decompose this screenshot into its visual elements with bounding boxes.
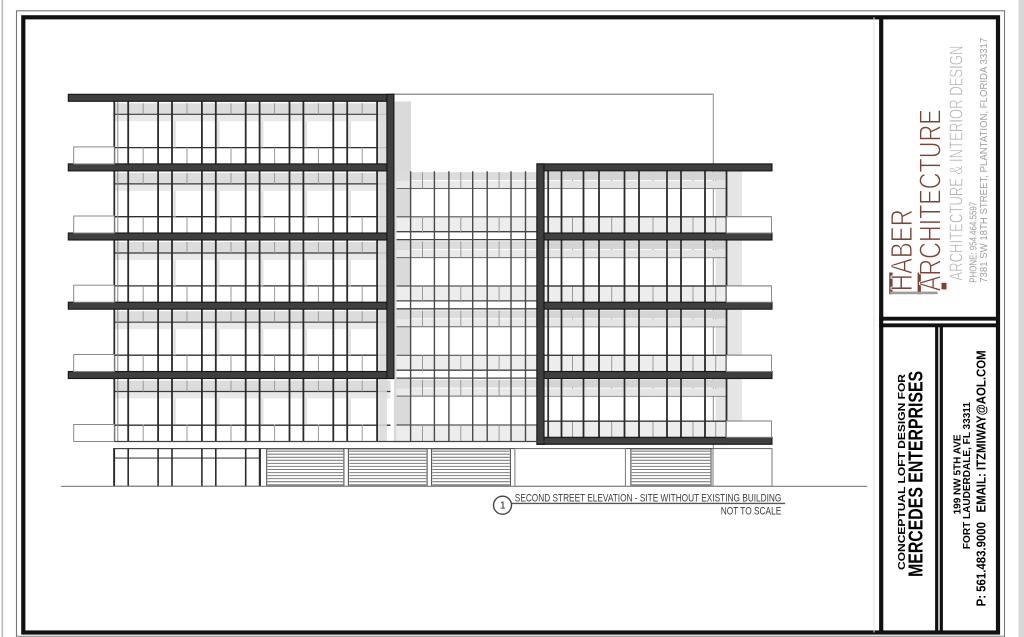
- svg-text:7381 SW 18TH STREET, PLANTATIO: 7381 SW 18TH STREET, PLANTATION, FLORIDA…: [979, 38, 990, 283]
- svg-text:PHONE: 954.464.5597: PHONE: 954.464.5597: [968, 202, 979, 283]
- svg-text:ARCHITECTURE & INTERIOR DESIGN: ARCHITECTURE & INTERIOR DESIGN: [945, 46, 966, 281]
- svg-text:NOT TO SCALE: NOT TO SCALE: [721, 505, 782, 517]
- svg-text:ARCHITECTURE: ARCHITECTURE: [913, 109, 947, 291]
- svg-text:1: 1: [500, 500, 506, 512]
- svg-text:MERCEDES ENTERPRISES: MERCEDES ENTERPRISES: [905, 371, 927, 577]
- svg-text:FORT LAUDERDALE, FL 33311: FORT LAUDERDALE, FL 33311: [962, 402, 973, 549]
- svg-text:P: 561.483.9000 EMAIL: ITZMI: P: 561.483.9000 EMAIL: ITZMIWAY@AOL.COM: [973, 350, 988, 606]
